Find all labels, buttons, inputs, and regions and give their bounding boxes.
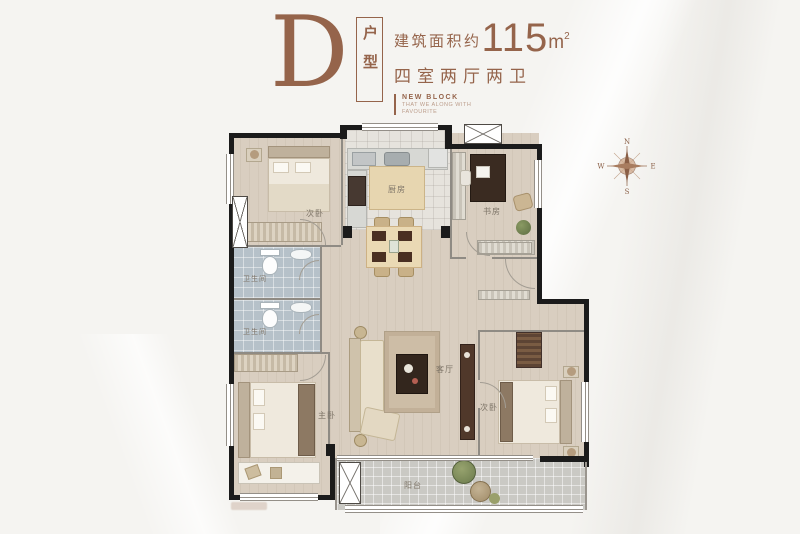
window [240,493,318,501]
plant-icon [516,220,531,235]
interior-wall [233,298,320,300]
bed-runner [298,384,315,456]
laptop-icon [476,166,490,178]
fridge [428,148,448,168]
room-label-master: 主卧 [318,410,336,421]
interior-wall [492,257,538,259]
kitchen-sink [384,152,410,166]
placemat [398,252,412,262]
balcony-wall [335,458,337,510]
table-lamp-icon [250,150,259,159]
wall-segment [537,299,589,304]
interior-wall [480,330,584,332]
table-decor [412,378,418,384]
room-label-bathroom-lower: 卫生间 [243,327,267,337]
toilet-tank [260,302,280,309]
window [534,160,542,208]
cooktop [352,152,376,166]
table-decor [404,364,413,373]
oven [348,176,366,206]
window [226,384,234,446]
desk-chair [460,170,471,186]
interior-wall [478,408,480,458]
balcony-wall [585,462,587,510]
placemat [372,252,386,262]
room-label-study: 书房 [483,206,501,217]
balcony-railing [345,505,583,513]
bed-runner [500,382,513,442]
placemat [372,231,386,241]
interior-wall [452,257,466,259]
pillow [253,413,265,430]
sliding-door [337,455,533,461]
pillow [295,162,311,173]
coffee-table [396,354,428,394]
pillow [545,408,557,423]
interior-wall [231,352,330,354]
window [581,382,589,442]
wall-segment [231,133,345,138]
wall-column [343,226,352,238]
room-label-kitchen: 厨房 [388,184,406,195]
interior-wall [328,352,330,452]
console-knob [464,352,470,358]
room-label-bathroom-upper: 卫生间 [243,274,267,284]
floorplan-sheet: D 户型 建筑面积约 115 m 2 四室两厅两卫 NEW BLOCK THAT… [0,0,800,534]
room-label-living: 客厅 [436,364,454,375]
toilet [262,256,278,275]
interior-wall [320,245,322,352]
pillow [253,389,265,406]
shaft-box [232,196,248,248]
desk [470,154,506,202]
room-label-balcony: 阳台 [404,480,422,491]
floor-lamp-icon [354,434,367,447]
pillow [273,162,289,173]
wardrobe [234,354,298,372]
bed-headboard [238,382,250,458]
pillow [545,386,557,401]
bed-blanket [269,184,329,211]
interior-wall [478,330,480,380]
wall-column [340,125,347,139]
console-knob [464,426,470,432]
wall-column [445,125,452,149]
shaft-box [339,462,361,504]
watermark [231,502,267,510]
placemat [398,231,412,241]
bed-headboard [268,146,330,158]
planter-pot [470,481,491,502]
centerpiece [389,240,399,253]
sink [290,302,312,313]
plant-icon [452,460,476,484]
sink [290,249,312,260]
interior-wall [450,149,452,259]
hall-wardrobe [516,332,542,368]
floor-plan: 次卧 厨房 书房 卫生间 卫生间 主卧 客厅 次卧 阳台 [0,0,800,534]
window [362,123,438,131]
wall-segment [540,456,589,462]
tall-cabinet [452,152,466,220]
plant-icon [489,493,500,504]
bed-headboard [560,380,572,444]
toilet [262,309,278,328]
wall-column [326,444,335,456]
wall-segment [452,144,542,149]
toilet-tank [260,249,280,256]
room-label-bedroom-top: 次卧 [306,208,324,219]
wall-segment [537,262,542,304]
table-lamp-icon [567,367,576,376]
ac-platform [464,124,502,144]
cushion [270,467,282,479]
hall-cabinet [478,290,530,300]
wall-column [441,226,450,238]
room-label-bedroom-right: 次卧 [480,402,498,413]
